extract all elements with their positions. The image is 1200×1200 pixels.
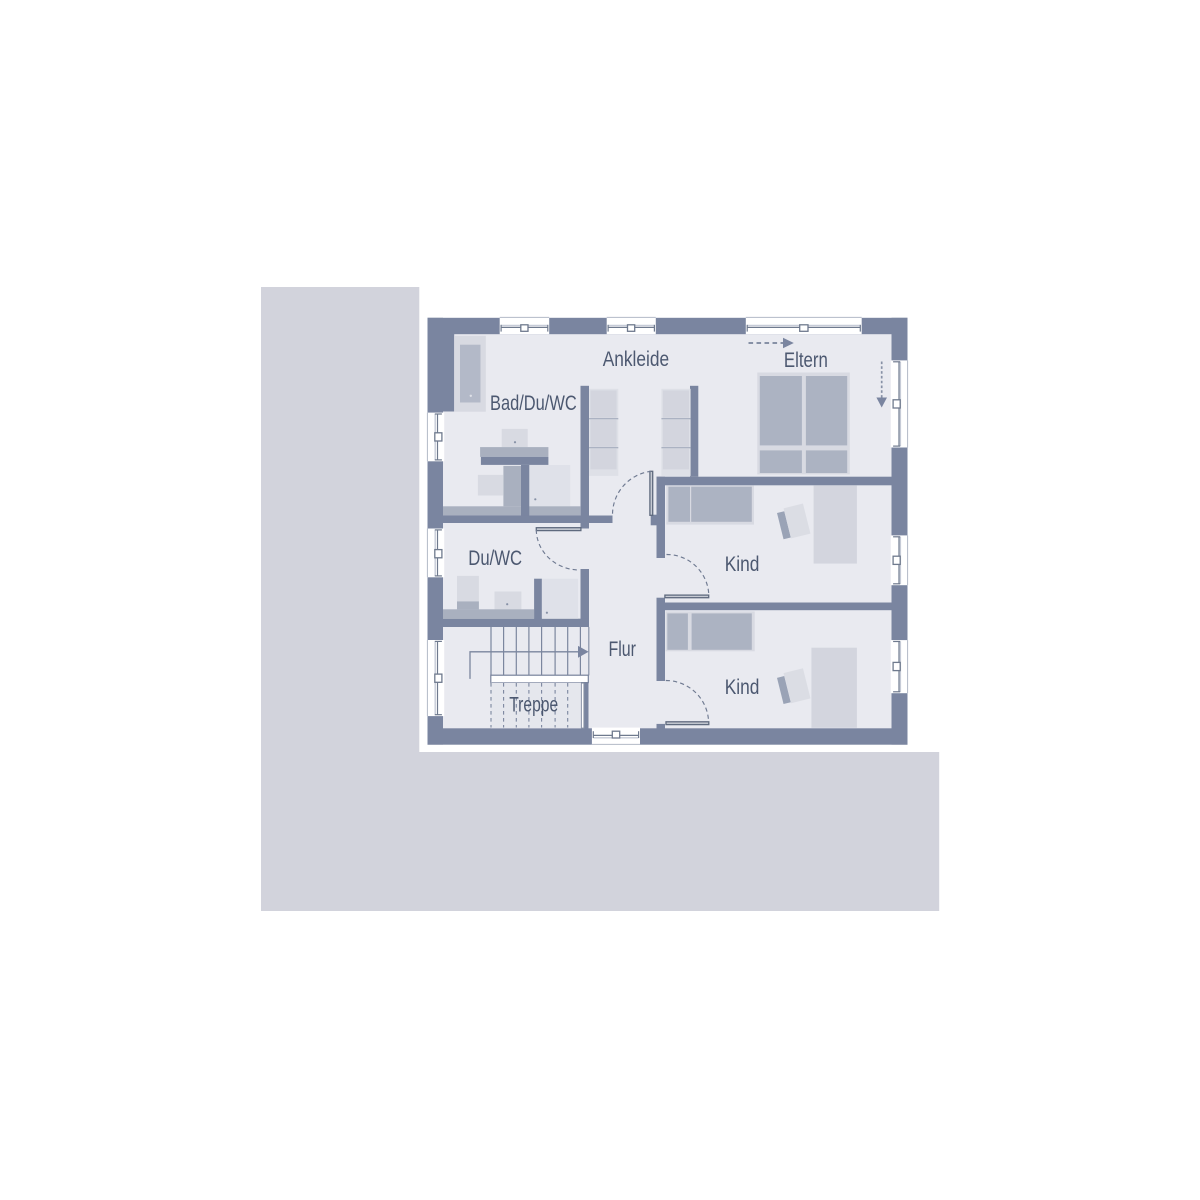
svg-text:Kind: Kind	[725, 675, 760, 699]
svg-text:Flur: Flur	[609, 637, 637, 661]
svg-text:Du/WC: Du/WC	[468, 546, 522, 570]
svg-text:Eltern: Eltern	[784, 348, 828, 372]
svg-text:Bad/Du/WC: Bad/Du/WC	[490, 391, 577, 415]
svg-text:Ankleide: Ankleide	[603, 347, 670, 371]
svg-text:Treppe: Treppe	[509, 692, 558, 716]
svg-text:Kind: Kind	[725, 552, 760, 576]
